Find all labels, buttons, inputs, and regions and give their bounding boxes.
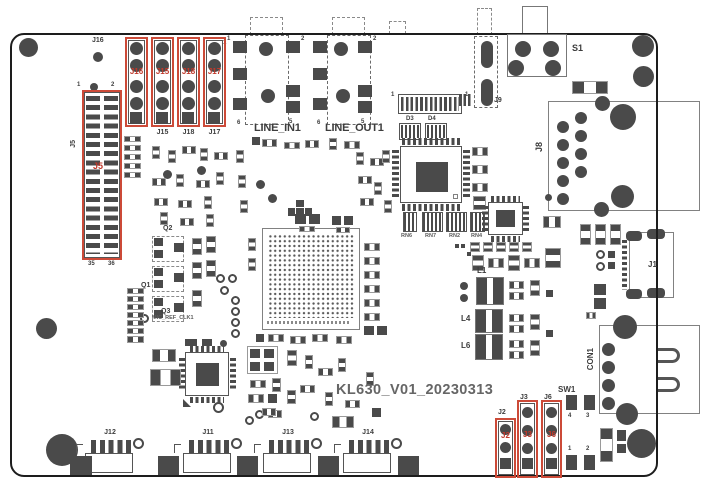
button-pad [508,60,524,76]
test-point [231,329,240,338]
con1-mount-hole [613,315,637,339]
passive-component [214,152,228,160]
con1-pin [602,397,615,410]
test-point [231,296,240,305]
con1-pin [602,361,615,374]
j12-pins [91,440,131,453]
passive-component [180,218,194,226]
passive-component [284,142,300,149]
passive-component [364,243,380,251]
passive-component [152,349,176,362]
button-pad [543,41,559,57]
rn6-label: RN6 [401,234,412,240]
usb-contact-fork [656,348,680,363]
passive-component [272,378,281,392]
qfp-die [416,162,448,192]
bracket-mark [76,444,83,453]
j14-label: J14 [353,429,383,436]
pin1-triangle-mark [183,399,191,407]
qfp-pins-bottom [402,204,460,211]
j9-label: J9 [494,97,502,104]
passive-component [546,330,553,337]
passive-component [384,200,392,213]
passive-component [338,358,346,372]
sw1-pad [584,455,595,470]
d3-label: D3 [406,116,414,122]
pcb-layout-diagram: J16 1 J15 J18 J17 1 2 J5 35 36 1 2 [0,0,716,492]
j6-red-label: J6 [541,431,562,439]
passive-component [305,208,312,216]
j5-pin2-label: 2 [111,82,114,88]
jack-pad [313,68,327,80]
rn2-label: RN2 [449,234,460,240]
passive-component [509,281,524,289]
passive-component [127,304,144,310]
d3-pads [401,125,419,138]
passive-component [206,214,214,227]
passive-component [264,362,274,371]
j14-hole [391,438,402,449]
test-point [213,402,224,413]
passive-component [344,216,353,225]
passive-component [288,208,295,216]
jack-pad [358,41,372,53]
passive-component [364,271,380,279]
transistor-pad [174,273,184,282]
test-point [596,250,605,259]
passive-component [509,325,524,333]
passive-component [192,238,202,255]
jack-pad [286,101,300,113]
passive-component [124,145,141,151]
j8-pin [575,130,587,142]
bracket-mark [174,444,181,453]
passive-component [617,444,626,453]
line-in-label: LINE_IN1 [254,123,301,134]
line-out-jack-tab [332,17,365,35]
passive-component [586,312,596,319]
passive-component [124,136,141,142]
passive-component [522,242,532,252]
jack-pad [286,85,300,97]
transistor-pad [154,250,163,258]
passive-component [600,428,613,462]
sw1-pin2-label: 2 [586,446,589,452]
passive-component [455,244,459,248]
mounting-hole [19,38,38,57]
con1-mount-hole [616,403,638,425]
passive-component [220,340,227,347]
passive-component [509,242,519,252]
j1-pad [626,231,642,241]
j1-pad [647,288,665,298]
l4-label: L4 [461,315,470,323]
j5-red-label: J5 [93,162,103,171]
passive-component [572,81,608,94]
passive-component [595,224,606,245]
passive-component [248,394,264,403]
jack-pad [313,98,327,110]
test-point [228,274,237,283]
passive-component [290,336,306,344]
passive-component [509,314,524,322]
line-in-pin6: 6 [237,120,240,126]
j3-red-label: J3 [517,431,538,439]
passive-component [152,146,160,159]
passive-component [460,282,468,290]
passive-component [546,290,553,297]
button-pad [545,60,561,76]
j14-connector [343,453,391,473]
passive-component [197,166,206,175]
j9-pad [481,79,493,106]
passive-component [124,154,141,160]
test-point [231,318,240,327]
j1-label: J1 [648,261,657,269]
highlight-j18 [177,37,200,127]
l6-label: L6 [461,342,470,350]
sw1-pin4-label: 4 [568,413,571,419]
passive-component [545,248,561,268]
inductor-l4 [475,309,503,333]
j2-silk-label: J2 [498,409,506,416]
connector-pins [401,97,459,111]
j8-pin [557,193,569,205]
passive-component [472,183,488,192]
passive-component [202,339,212,346]
passive-component [312,334,328,342]
passive-component [358,176,372,184]
passive-component [268,194,277,203]
test-point [231,307,240,316]
qfn-pins-left [482,206,488,231]
highlight-j2 [495,418,516,478]
bracket-mark [334,444,341,453]
edge-pad [70,456,92,475]
inductor-l6 [475,334,503,360]
j8-pin [557,157,569,169]
jack-pad [233,98,247,110]
j16-red-label: J16 [125,68,148,76]
passive-component [299,226,315,232]
jack-pad [286,41,300,53]
rn4-label: RN4 [471,234,482,240]
passive-component [318,368,333,376]
passive-component [296,217,304,224]
passive-component [256,334,264,342]
passive-component [127,288,144,294]
rn7-label: RN7 [425,234,436,240]
j11-hole [231,438,242,449]
line-in-pin2: 2 [301,36,304,42]
passive-component [150,369,181,386]
passive-component [336,336,352,344]
passive-component [325,392,333,406]
s1-button-tab [522,6,548,35]
qfp-pins-right [463,150,470,198]
board-silkscreen-title: KL630_V01_20230313 [336,383,493,398]
j15-silk-label: J15 [151,129,174,136]
line-out-pin2: 2 [373,36,376,42]
d4-pads [427,125,445,138]
highlight-j15 [151,37,174,127]
j8-pin [575,112,587,124]
passive-component [127,328,144,334]
qfn-die [496,210,515,227]
passive-component [530,340,540,356]
passive-component [250,362,260,371]
passive-component [305,355,313,369]
passive-component [178,200,192,208]
passive-component [287,390,296,404]
passive-component [377,326,387,335]
highlight-j6 [541,400,562,478]
j5-pin1-label: 1 [77,82,80,88]
j8-pin [557,175,569,187]
qfn-pins-right [230,358,236,390]
qfn-pins-right [523,206,529,231]
passive-component [185,339,197,346]
highlight-j5 [82,90,122,260]
jack-hole [261,89,275,103]
passive-component [332,416,354,428]
jack-pad [358,101,372,113]
j8-label: J8 [535,142,544,152]
passive-component [364,326,374,335]
edge-pad [158,456,179,475]
j9-pad [481,41,493,68]
passive-component [268,334,284,342]
passive-component [509,340,524,348]
passive-component [127,336,144,343]
sw1-pad [566,455,577,470]
jack-hole [334,42,348,56]
passive-component [382,150,390,163]
passive-component [594,298,606,309]
passive-component [240,200,248,213]
passive-component [360,198,374,206]
highlight-j17 [203,37,226,127]
passive-component [127,320,144,326]
passive-component [508,255,520,271]
transistor-pad [154,298,163,306]
j12-hole [133,438,144,449]
j13-label: J13 [273,429,303,436]
j11-label: J11 [193,429,223,436]
line-out-pin6: 6 [317,120,320,126]
passive-component [332,216,341,225]
passive-component [336,227,350,233]
line-in-jack-tab [250,17,283,35]
passive-component [345,400,360,408]
con1-pin [602,343,615,356]
jack-pad [358,85,372,97]
highlight-j3 [517,400,538,478]
passive-component [127,296,144,302]
passive-component [154,198,168,206]
j13-connector [263,453,311,473]
mic-ref-clk-label: MIC_REF_CLK1 [152,316,194,322]
qfp-pins-left [392,150,399,198]
transistor-pad [154,268,163,276]
j8-pin [557,121,569,133]
passive-component [364,299,380,307]
j1-pin-column [622,240,627,290]
passive-component [509,292,524,300]
passive-component [543,216,561,228]
passive-component [262,139,277,147]
passive-component [610,224,621,245]
d4-label: D4 [428,116,436,122]
passive-component [364,313,380,321]
j16-silk-label: J16 [92,37,104,44]
passive-component [488,258,504,268]
con1-pin [602,379,615,392]
passive-component [204,196,212,209]
passive-component [296,200,304,207]
q2-label: Q2 [163,225,172,232]
passive-component [250,349,260,358]
passive-component [127,312,144,318]
passive-component [530,280,540,296]
j1-pad [626,289,642,299]
passive-component [192,290,202,307]
line-in-pin1: 1 [227,36,230,42]
j1-pad [647,229,665,239]
sw1-pin3-label: 3 [586,413,589,419]
sw1-pin1-label: 1 [568,446,571,452]
qfp-pins-top [402,138,460,145]
q3-label: Q3 [161,308,170,315]
passive-component [296,208,304,216]
j12-connector [85,453,133,473]
test-point [310,412,319,421]
j5-pin36-label: 36 [108,261,115,267]
passive-component [250,380,266,388]
l1-label: L1 [477,267,486,275]
passive-component [472,165,488,174]
bga-ball-grid [268,234,354,318]
passive-component [524,258,540,268]
passive-component [176,174,184,187]
passive-component [160,212,168,225]
passive-component [168,150,176,163]
j8-mount-hole [611,185,634,208]
passive-component [329,138,337,150]
j13-hole [311,438,322,449]
passive-component [300,385,315,393]
transistor-pad [174,303,184,312]
jack-pad [313,41,327,53]
edge-pad [398,456,419,475]
qfn-die [196,363,219,386]
jack-pad [233,41,247,53]
passive-component [268,394,277,403]
mounting-hole [627,429,656,458]
passive-component [192,262,202,279]
jack-pad [233,68,247,80]
mounting-hole [36,318,57,339]
j8-mount-hole [594,202,609,217]
qfp-pin1-mark [453,194,458,199]
passive-component [262,408,276,416]
j8-pin [575,166,587,178]
rn-pads [447,213,466,231]
passive-component [467,252,471,256]
test-point [216,274,225,283]
passive-component [530,314,540,330]
test-point [245,416,254,425]
edge-pad [318,456,339,475]
passive-component [470,242,480,252]
mounting-hole [633,66,654,87]
passive-component [580,224,591,245]
j5-pin35-label: 35 [88,261,95,267]
transistor-pad [154,280,163,288]
passive-component [248,238,256,251]
passive-component [374,182,382,195]
fiducial [93,52,103,62]
edge-pad [237,456,258,475]
passive-component [200,148,208,161]
passive-component [459,94,471,106]
passive-component [608,262,615,269]
passive-component [594,284,606,295]
passive-component [124,172,141,178]
j5-silk-label: J5 [70,140,77,148]
passive-component [472,147,488,156]
j11-connector [183,453,231,473]
inductor-l1 [476,277,504,305]
passive-component [305,140,319,148]
passive-component [264,349,274,358]
passive-component [236,150,244,163]
passive-component [252,137,260,145]
sw1-pad [566,395,577,410]
conn-pin1-left: 1 [391,92,394,98]
top-connector-tab [389,21,406,34]
rn-pads [423,213,442,231]
mounting-hole [632,35,654,57]
j8-pin [545,194,552,201]
j18-red-label: J18 [177,68,200,76]
passive-component [182,146,196,154]
transistor-pad [174,243,184,252]
j8-mount-hole [595,96,610,111]
j8-mount-hole [610,104,636,130]
passive-component [617,430,626,441]
j2-red-label: J2 [495,432,516,440]
con1-label: CON1 [587,348,595,370]
passive-component [608,251,615,258]
jack-hole [336,89,350,103]
passive-component [206,260,216,277]
passive-component [287,350,297,366]
passive-component [196,180,210,188]
j18-silk-label: J18 [177,129,200,136]
passive-component [483,242,493,252]
bracket-mark [254,444,261,453]
passive-component [248,258,256,271]
j15-red-label: J15 [151,68,174,76]
passive-component [124,163,141,169]
line-out-label: LINE_OUT1 [325,123,384,134]
j17-silk-label: J17 [203,129,226,136]
jack-hole [259,42,273,56]
passive-component [206,236,216,253]
passive-component [509,351,524,359]
passive-component [372,408,381,417]
